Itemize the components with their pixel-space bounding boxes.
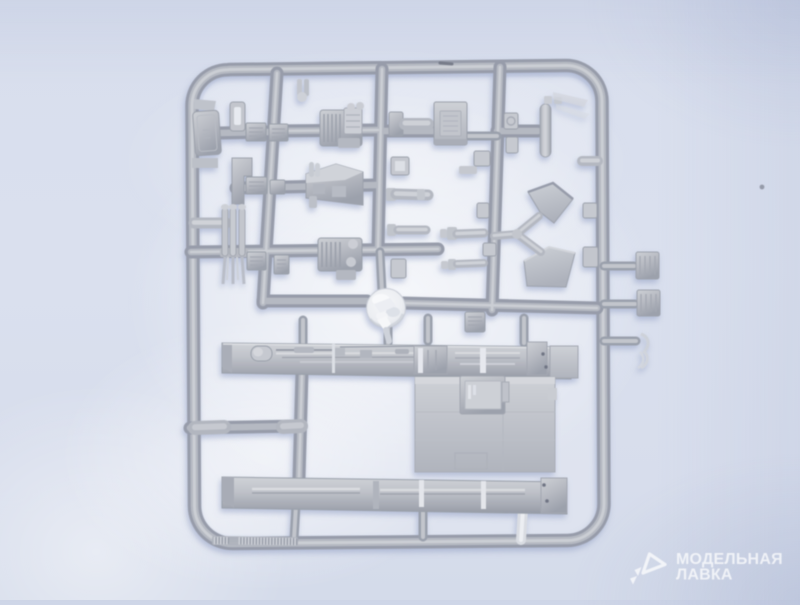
svg-text:ЛАВКА: ЛАВКА [676,567,733,584]
svg-text:МОДЕЛЬНАЯ: МОДЕЛЬНАЯ [676,551,783,568]
